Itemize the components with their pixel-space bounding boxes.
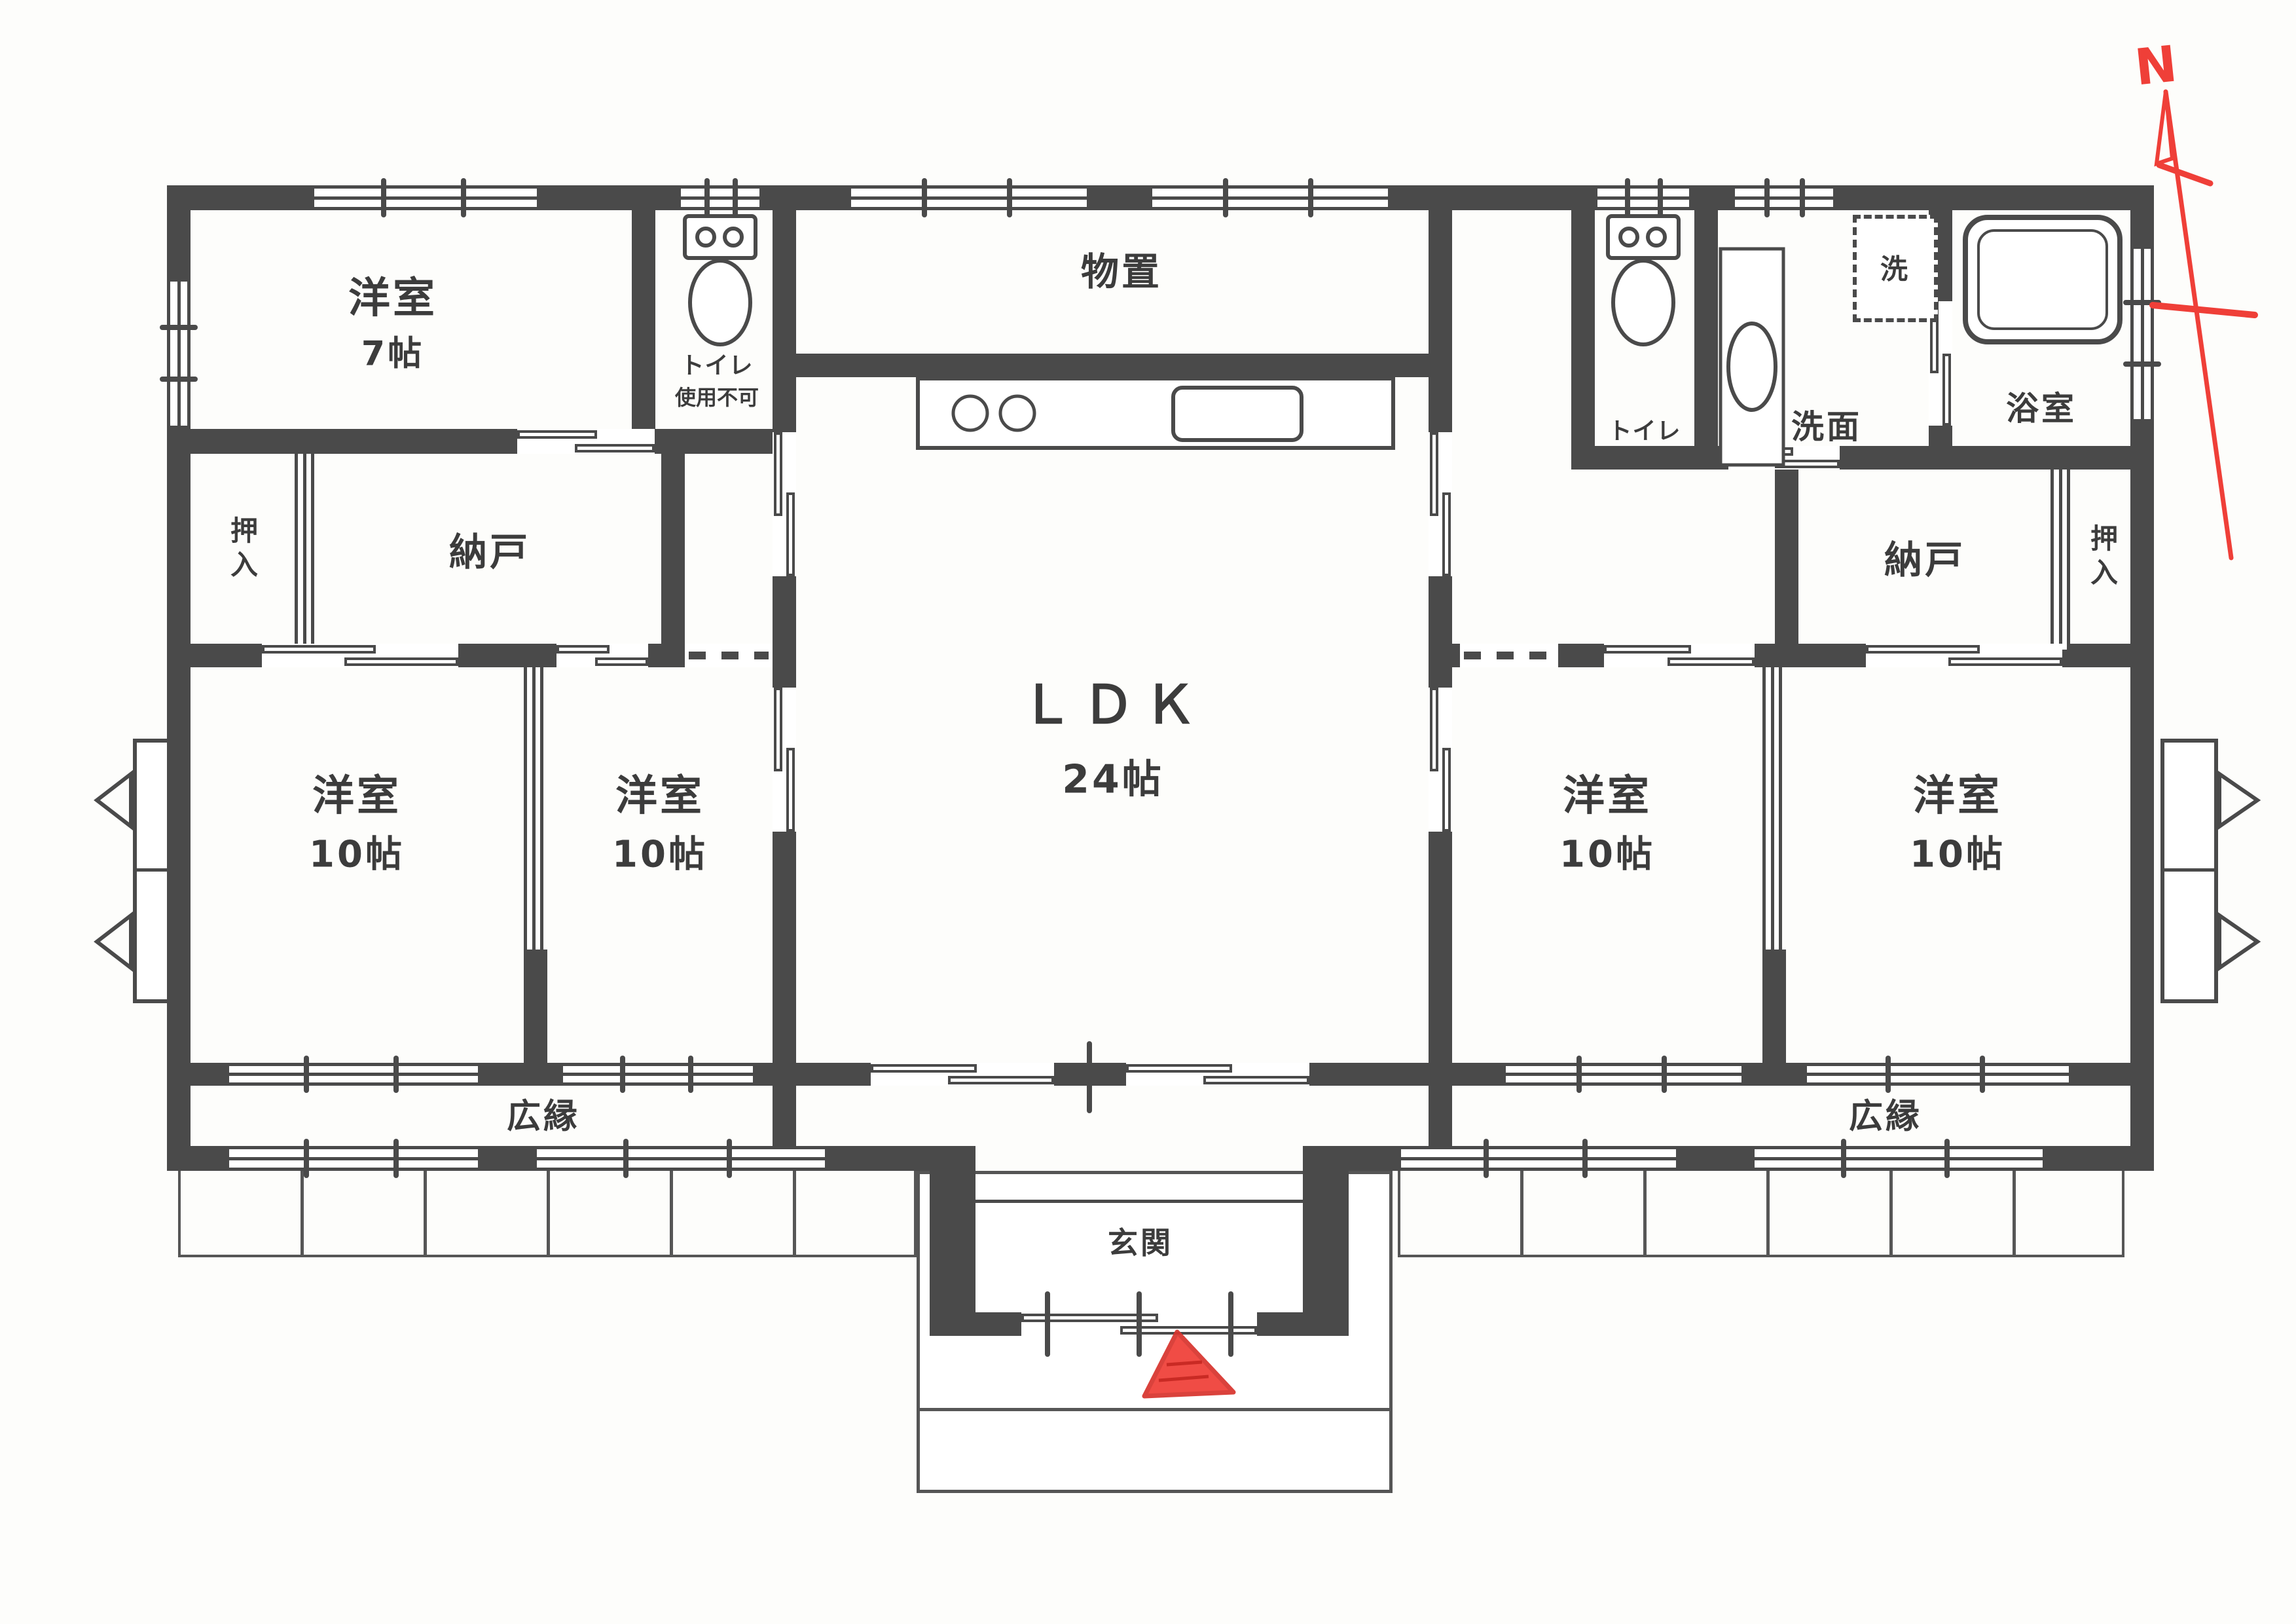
label-yoshitsu7-size: 7帖 [361,326,424,375]
bathtub [1965,217,2120,342]
window-hiroen-left-out-2 [537,1146,825,1171]
corridor-right-dash [1464,652,1554,659]
ldk-bottom-door-1 [871,1063,1054,1086]
label-ldk-size: 24帖 [1062,748,1164,805]
door-bedroom3-top [1604,644,1755,667]
window-top-monooki-2 [1152,185,1388,210]
bay-left-arrows [97,774,131,968]
door-bedroom4-top [1866,644,2062,667]
senmen-door [1728,446,1840,470]
window-top-yoshitsu7 [314,185,537,210]
wall-genkan-left [930,1146,975,1336]
ldk-right-door-2 [1429,688,1452,832]
window-top-senmen [1735,185,1833,210]
ldk-bottom-dash-left [805,1070,864,1078]
ldk-left-door-2 [773,688,796,832]
window-hiroen-left-1 [229,1063,478,1086]
ldk-right-door-1 [1429,432,1452,576]
bedroom12-partition [524,667,543,950]
label-genkan: 玄関 [1108,1219,1173,1263]
toilet1-fixture [685,216,756,344]
door-bedroom1-top [262,644,458,667]
wall-nando-left-right [661,454,685,644]
label-oshiire-right: 押入 [2083,524,2123,592]
label-bedroom3: 洋室 [1563,762,1652,822]
label-north: N [2132,34,2180,96]
window-hiroen-right-out-1 [1401,1146,1676,1171]
label-nando-right: 納戸 [1884,529,1965,584]
bay-window-right-mullion [2164,868,2215,872]
label-senmen: 洗面 [1791,401,1862,448]
terrace-right [1398,1171,2124,1257]
label-washer: 洗 [1880,248,1910,287]
oshiire-left-door [295,454,314,644]
toilet1-door-dash [640,314,647,413]
window-top-toilet2 [1597,185,1689,210]
label-bedroom1: 洋室 [312,762,401,822]
label-yokushitsu: 浴室 [2006,382,2077,430]
genkan-step-line [975,1200,1303,1203]
label-bedroom2-size: 10帖 [612,825,708,878]
north-arrow-icon [2153,92,2255,558]
label-bedroom2: 洋室 [615,762,704,822]
label-bedroom3-size: 10帖 [1559,825,1655,878]
window-hiroen-right-2 [1807,1063,2069,1086]
wall-senmen-left [1694,210,1718,470]
bay-right-arrows [2219,774,2257,968]
wall-monooki-bottom [796,354,1429,377]
senmen-sink [1721,249,1783,465]
porch-step-line [920,1408,1389,1411]
senmen-door-dash [1846,454,1918,462]
bedroom34-partition [1762,667,1782,950]
genkan-door-tick-1 [1045,1291,1050,1357]
ldk-left-dash [780,904,788,1035]
ldk-right-dash [1436,904,1444,1035]
floor-plan: 洋室 7帖 トイレ 使用不可 物置 トイレ 洗面 洗 浴室 押入 納戸 納戸 押… [0,0,2296,1624]
genkan-door-tick-2 [1137,1291,1142,1357]
nando-right-door-dash [1783,498,1791,602]
ldk-left-door-1 [773,432,796,576]
window-hiroen-right-1 [1506,1063,1741,1086]
label-bedroom4-size: 10帖 [1910,825,2005,878]
ldk-bottom-door-2 [1126,1063,1309,1086]
label-bedroom1-size: 10帖 [309,825,405,878]
wall-genkan-bottom-right [1257,1312,1349,1336]
label-toilet1-note: 使用不可 [675,381,759,411]
label-hiroen-left: 広縁 [507,1089,580,1138]
label-toilet1: トイレ [680,346,753,380]
ldk-bottom-dash-right [1322,1070,1388,1078]
label-yoshitsu7: 洋室 [348,265,437,325]
window-hiroen-left-out-1 [229,1146,478,1171]
toilet2-door-dash [1579,327,1587,432]
wall-bedroom12-stub [524,950,547,1063]
window-right-yokushitsu [2130,249,2154,419]
label-nando-left: 納戸 [449,521,530,576]
floor-plan-page: { "document_type": "floor-plan-scan", "c… [0,0,2296,1624]
window-left-yoshitsu7 [167,282,191,426]
oshiire-right-door [2050,470,2070,650]
window-top-monooki-1 [851,185,1087,210]
wall-bedroom34-stub [1762,950,1786,1063]
door-bedroom2-top [556,644,648,667]
label-oshiire-left: 押入 [223,516,263,584]
ldk-door-tick [1087,1041,1092,1113]
window-hiroen-right-out-2 [1755,1146,2043,1171]
opening-yoshitsu7 [393,437,504,445]
door-yoshitsu7 [517,429,655,454]
window-top-toilet1 [681,185,759,210]
wall-genkan-right [1303,1146,1349,1336]
kitchen-counter [918,378,1393,448]
label-monooki: 物置 [1081,241,1162,296]
label-toilet2: トイレ [1608,412,1681,446]
terrace-left [178,1171,917,1257]
label-bedroom4: 洋室 [1913,762,2002,822]
toilet2-fixture [1608,216,1679,344]
corridor-left-dash [689,652,769,659]
window-hiroen-left-2 [563,1063,753,1086]
wall-genkan-bottom-left [930,1312,1021,1336]
label-hiroen-right: 広縁 [1849,1089,1922,1138]
label-ldk: ＬＤＫ [1021,663,1205,739]
genkan-door-tick-3 [1228,1291,1233,1357]
